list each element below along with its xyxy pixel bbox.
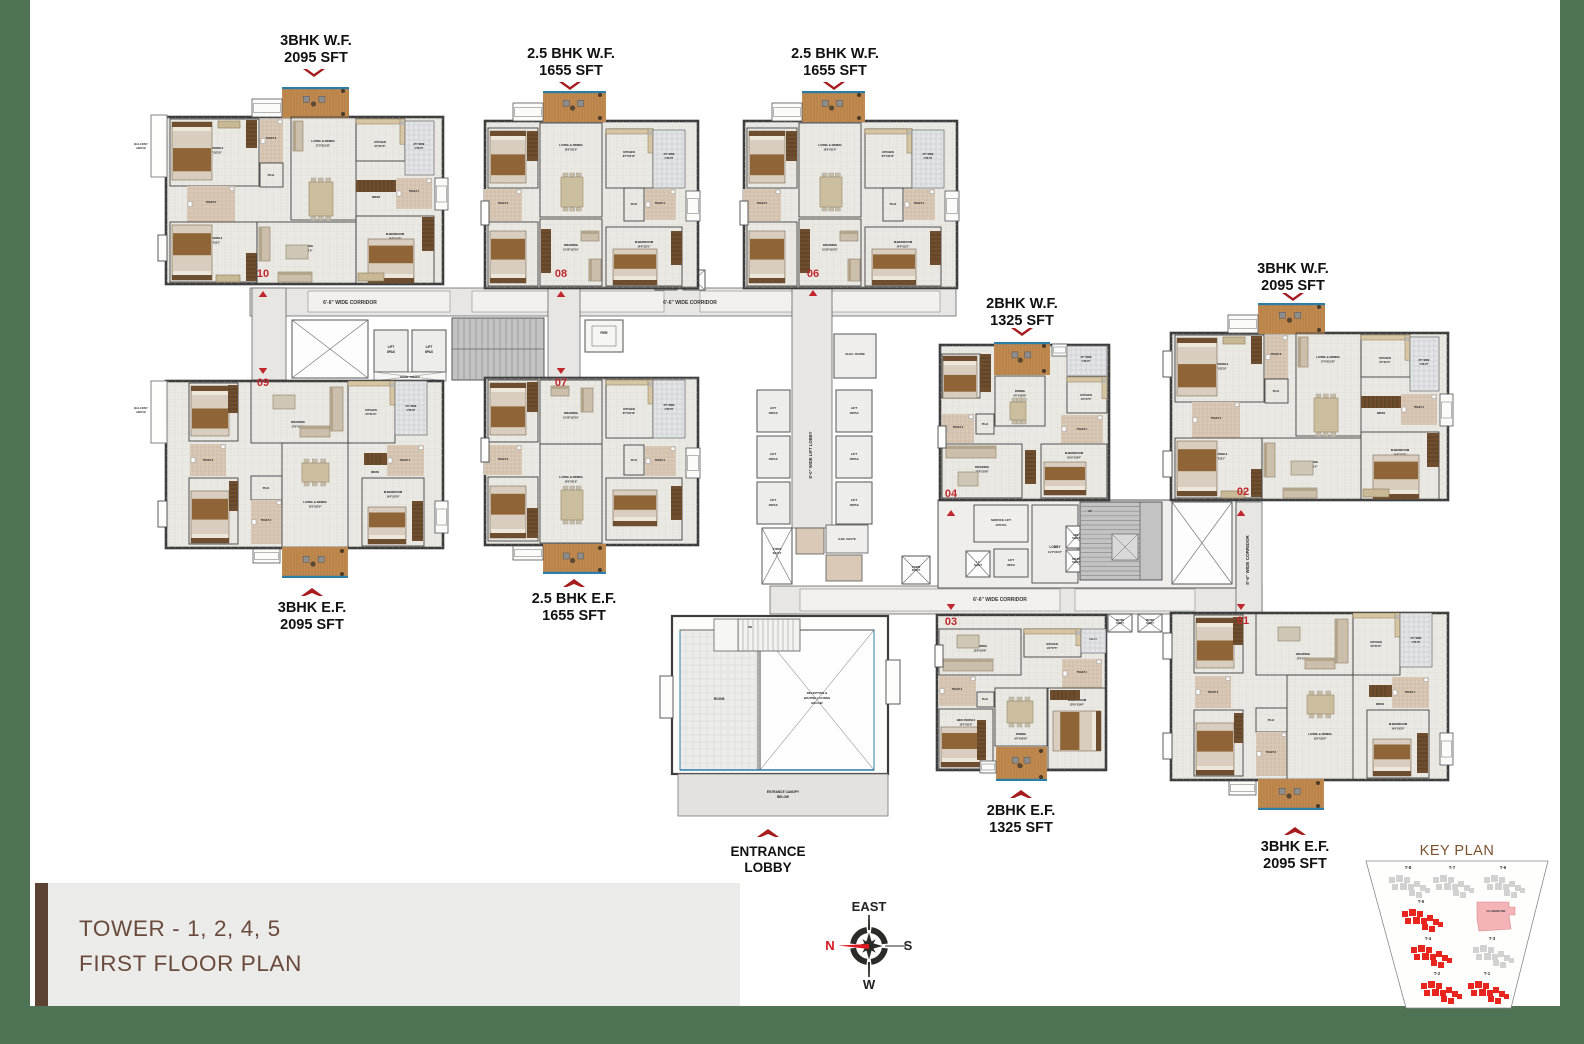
svg-text:DRAWING: DRAWING <box>975 465 990 469</box>
svg-text:LIFT: LIFT <box>388 345 395 349</box>
svg-text:16'0"X11'6": 16'0"X11'6" <box>565 149 578 152</box>
svg-text:FIRE: FIRE <box>1073 535 1079 537</box>
svg-text:16PAX: 16PAX <box>849 503 858 507</box>
svg-text:LIFT: LIFT <box>770 406 776 410</box>
svg-text:16'0"X11'6": 16'0"X11'6" <box>565 481 578 484</box>
svg-text:8'0"X10'10": 8'0"X10'10" <box>623 156 635 158</box>
svg-text:SHAFT: SHAFT <box>1116 622 1124 625</box>
svg-text:PUJA: PUJA <box>890 203 897 206</box>
svg-text:LIFT: LIFT <box>770 452 776 456</box>
svg-text:LIVING & DINING: LIVING & DINING <box>303 500 327 504</box>
svg-text:16PAX: 16PAX <box>768 457 777 461</box>
svg-text:KITCHEN: KITCHEN <box>1046 642 1058 646</box>
svg-text:04: 04 <box>945 488 958 500</box>
svg-text:16PAX: 16PAX <box>768 503 777 507</box>
svg-text:KITCHEN: KITCHEN <box>1379 356 1391 360</box>
svg-text:M.BEDROOM: M.BEDROOM <box>1065 451 1084 455</box>
svg-text:LIFT: LIFT <box>426 345 433 349</box>
svg-text:8'0"X10'10": 8'0"X10'10" <box>623 413 635 415</box>
svg-text:TOILET-2: TOILET-2 <box>261 519 272 522</box>
svg-text:11'0"X7'6": 11'0"X7'6" <box>1080 399 1091 401</box>
svg-text:10'10"X14'0": 10'10"X14'0" <box>1070 704 1084 707</box>
svg-text:TOILET-2: TOILET-2 <box>952 688 963 691</box>
svg-text:3BHK E.F.: 3BHK E.F. <box>1261 839 1330 855</box>
svg-text:2095 SFT: 2095 SFT <box>280 617 344 633</box>
svg-text:LOBBY: LOBBY <box>744 860 791 875</box>
svg-text:BELOW: BELOW <box>811 701 822 705</box>
svg-text:8PAX: 8PAX <box>1007 563 1015 567</box>
svg-text:TOILET-2: TOILET-2 <box>757 202 768 205</box>
svg-text:8'0" WIDE: 8'0" WIDE <box>414 144 425 146</box>
svg-text:PUJA: PUJA <box>982 698 988 701</box>
svg-text:T-2: T-2 <box>1434 971 1441 976</box>
svg-text:9'0"X10'00": 9'0"X10'00" <box>1014 395 1027 398</box>
svg-text:2095 SFT: 2095 SFT <box>284 50 348 66</box>
svg-text:M.BEDROOM: M.BEDROOM <box>1391 448 1410 452</box>
svg-text:2.5 BHK W.F.: 2.5 BHK W.F. <box>791 46 879 62</box>
svg-text:WATER: WATER <box>1116 619 1124 622</box>
svg-text:UTILITY: UTILITY <box>665 158 674 160</box>
svg-text:UTILITY: UTILITY <box>415 148 424 150</box>
svg-text:8PAX: 8PAX <box>425 350 434 354</box>
svg-text:PUJA: PUJA <box>1268 719 1275 722</box>
svg-text:SHAFT: SHAFT <box>974 564 983 567</box>
svg-text:TOILET-2: TOILET-2 <box>498 458 509 461</box>
svg-text:ROOM: ROOM <box>714 697 725 701</box>
svg-text:10'10"X12'10": 10'10"X12'10" <box>822 249 838 252</box>
svg-text:GAR. CHUTE: GAR. CHUTE <box>838 537 856 541</box>
svg-text:KITCHEN: KITCHEN <box>1080 393 1092 397</box>
svg-text:TOILET-3: TOILET-3 <box>203 459 214 462</box>
svg-text:01: 01 <box>1237 615 1249 627</box>
svg-text:10'10"X12'10": 10'10"X12'10" <box>563 249 579 252</box>
svg-text:17'9"X12'10": 17'9"X12'10" <box>1321 361 1335 364</box>
svg-text:11'6"X13'0": 11'6"X13'0" <box>1314 738 1327 741</box>
svg-text:2BHK E.F.: 2BHK E.F. <box>987 803 1056 819</box>
svg-text:TOILET-3: TOILET-3 <box>1208 691 1219 694</box>
svg-text:16PAX: 16PAX <box>849 411 858 415</box>
svg-text:8'0"X11'6": 8'0"X11'6" <box>1379 362 1390 364</box>
svg-text:SHAFT: SHAFT <box>773 551 782 555</box>
svg-text:DINING: DINING <box>1016 732 1027 736</box>
svg-text:16PAX: 16PAX <box>768 411 777 415</box>
svg-text:8'0"X10'10": 8'0"X10'10" <box>882 156 894 158</box>
svg-text:FIRE: FIRE <box>600 331 607 335</box>
svg-text:1655 SFT: 1655 SFT <box>539 63 603 79</box>
svg-text:14'0"X12'1": 14'0"X12'1" <box>897 246 910 249</box>
svg-text:M.BEDROOM: M.BEDROOM <box>386 232 405 236</box>
svg-text:09: 09 <box>257 377 269 389</box>
svg-text:8'0" WIDE: 8'0" WIDE <box>1419 360 1430 362</box>
svg-text:S: S <box>904 938 913 953</box>
svg-text:KITCHEN: KITCHEN <box>882 150 894 154</box>
svg-text:M.BEDROOM: M.BEDROOM <box>384 490 403 494</box>
svg-text:14'4"X10'2": 14'4"X10'2" <box>1048 550 1063 554</box>
svg-text:TOILET-2: TOILET-2 <box>953 426 964 429</box>
svg-text:PUJA: PUJA <box>1273 390 1280 393</box>
svg-text:DRAWING: DRAWING <box>564 411 579 415</box>
svg-text:10'10"X12'10": 10'10"X12'10" <box>563 417 579 420</box>
svg-text:9'6"X11'6": 9'6"X11'6" <box>365 414 376 416</box>
svg-text:T-5: T-5 <box>1418 899 1425 904</box>
svg-text:10'10"X14'0": 10'10"X14'0" <box>1067 457 1081 460</box>
svg-text:LIVING & DINING: LIVING & DINING <box>559 143 583 147</box>
svg-text:STRDS: STRDS <box>773 547 782 551</box>
svg-text:LIVING & DINING: LIVING & DINING <box>818 143 842 147</box>
svg-text:8PAX: 8PAX <box>387 350 396 354</box>
svg-text:LIVING & DINING: LIVING & DINING <box>559 475 583 479</box>
svg-text:TOILET-2: TOILET-2 <box>206 201 217 204</box>
svg-text:11'0"X7'6": 11'0"X7'6" <box>1046 648 1057 650</box>
svg-text:8'0" WIDE: 8'0" WIDE <box>664 154 675 156</box>
svg-text:DINING: DINING <box>1015 389 1026 393</box>
svg-text:1270 KG: 1270 KG <box>995 523 1006 527</box>
svg-text:LIFT: LIFT <box>851 406 857 410</box>
svg-text:3BHK W.F.: 3BHK W.F. <box>1257 261 1329 277</box>
svg-text:1655 SFT: 1655 SFT <box>803 63 867 79</box>
svg-text:TOILET-2: TOILET-2 <box>498 202 509 205</box>
svg-text:8'0"X11'6": 8'0"X11'6" <box>374 146 385 148</box>
svg-text:N: N <box>825 938 834 953</box>
svg-text:9'6"X11'6": 9'6"X11'6" <box>1370 646 1381 648</box>
svg-text:SHAFT: SHAFT <box>1072 537 1080 540</box>
svg-text:DRAWING: DRAWING <box>823 243 838 247</box>
svg-text:M.BEDROOM: M.BEDROOM <box>635 240 654 244</box>
svg-text:LIVING & DINING: LIVING & DINING <box>311 139 335 143</box>
svg-text:8'0" WIDE: 8'0" WIDE <box>664 405 675 407</box>
svg-text:TOILET-1: TOILET-1 <box>655 202 666 205</box>
svg-text:2095 SFT: 2095 SFT <box>1263 856 1327 872</box>
svg-text:DRAWING: DRAWING <box>564 243 579 247</box>
svg-text:PUJA: PUJA <box>982 423 989 426</box>
svg-text:DRAWING: DRAWING <box>1296 652 1311 656</box>
svg-text:PUJA: PUJA <box>631 459 638 462</box>
svg-text:TOWER - 1, 2, 4, 5: TOWER - 1, 2, 4, 5 <box>79 916 281 941</box>
svg-text:DN: DN <box>748 625 752 629</box>
svg-text:T-1: T-1 <box>1484 971 1491 976</box>
svg-text:PRESS: PRESS <box>1072 559 1080 561</box>
svg-text:8'0" WIDE: 8'0" WIDE <box>1411 638 1422 640</box>
svg-text:1325 SFT: 1325 SFT <box>990 313 1054 329</box>
svg-text:2.5 BHK E.F.: 2.5 BHK E.F. <box>532 591 617 607</box>
svg-text:TOILET-1: TOILET-1 <box>914 202 925 205</box>
svg-text:8'-6" WIDE CORRIDOR: 8'-6" WIDE CORRIDOR <box>1245 535 1250 585</box>
svg-text:14'0"X12'0": 14'0"X12'0" <box>1392 728 1405 731</box>
svg-text:ENTRANCE CANOPY: ENTRANCE CANOPY <box>767 790 800 794</box>
svg-text:DRAWING: DRAWING <box>291 420 306 424</box>
svg-text:06: 06 <box>807 268 819 280</box>
svg-text:12'8"X10'8": 12'8"X10'8" <box>974 650 987 653</box>
svg-text:UTILITY: UTILITY <box>407 410 416 412</box>
svg-text:8'0" WIDE: 8'0" WIDE <box>1081 357 1092 359</box>
svg-text:TOILET-1: TOILET-1 <box>1405 691 1416 694</box>
svg-text:UTILITY: UTILITY <box>665 409 674 411</box>
svg-text:07: 07 <box>555 377 567 389</box>
svg-text:T-8: T-8 <box>1405 865 1412 870</box>
svg-text:WATER: WATER <box>1146 619 1154 622</box>
svg-text:2095 SFT: 2095 SFT <box>1261 278 1325 294</box>
svg-text:11'6"X13'0": 11'6"X13'0" <box>309 506 322 509</box>
svg-text:3BHK W.F.: 3BHK W.F. <box>280 33 352 49</box>
svg-text:LIVING & DINING: LIVING & DINING <box>1308 732 1332 736</box>
svg-text:T-6: T-6 <box>1500 865 1507 870</box>
svg-text:BED ROOM-2: BED ROOM-2 <box>957 718 976 722</box>
svg-text:LIFT: LIFT <box>851 498 857 502</box>
svg-text:ENTRANCE: ENTRANCE <box>730 844 805 859</box>
svg-text:SHAFT: SHAFT <box>912 569 921 572</box>
svg-text:LIFT: LIFT <box>770 498 776 502</box>
svg-text:W: W <box>863 977 876 992</box>
svg-text:T-7: T-7 <box>1449 865 1456 870</box>
svg-text:16PAX: 16PAX <box>849 457 858 461</box>
svg-text:ABOVE: ABOVE <box>136 146 146 150</box>
svg-text:SHAFT: SHAFT <box>1072 561 1080 564</box>
svg-text:BELOW: BELOW <box>777 795 789 799</box>
svg-text:SHAFT: SHAFT <box>1146 622 1154 625</box>
svg-text:17'9"X12'10": 17'9"X12'10" <box>316 145 330 148</box>
svg-text:KITCHEN: KITCHEN <box>1370 640 1382 644</box>
svg-text:1655 SFT: 1655 SFT <box>542 608 606 624</box>
svg-text:3BHK E.F.: 3BHK E.F. <box>278 600 347 616</box>
svg-text:2BHK W.F.: 2BHK W.F. <box>986 296 1058 312</box>
svg-text:UTILITY: UTILITY <box>1082 361 1091 363</box>
svg-text:LIFT: LIFT <box>1008 558 1014 562</box>
svg-text:10'2"X11'8": 10'2"X11'8" <box>960 724 973 727</box>
svg-text:08: 08 <box>555 268 567 280</box>
svg-text:1325 SFT: 1325 SFT <box>989 820 1053 836</box>
svg-text:KITCHEN: KITCHEN <box>374 140 386 144</box>
svg-text:UP: UP <box>1088 509 1092 513</box>
svg-text:M.BEDROOM: M.BEDROOM <box>894 240 913 244</box>
svg-text:TOILET-1: TOILET-1 <box>1077 428 1088 431</box>
svg-text:UTILITY: UTILITY <box>1420 364 1429 366</box>
svg-text:SERVICE LIFT: SERVICE LIFT <box>991 518 1011 522</box>
svg-text:EAST: EAST <box>852 899 887 914</box>
svg-text:M.BEDROOM: M.BEDROOM <box>1389 722 1408 726</box>
svg-text:TOILET-3: TOILET-3 <box>266 137 277 140</box>
svg-text:10: 10 <box>257 268 269 280</box>
svg-text:ELEC. ROOM: ELEC. ROOM <box>845 352 865 356</box>
svg-text:14'0"X12'0": 14'0"X12'0" <box>387 496 400 499</box>
svg-text:14'0"X12'1": 14'0"X12'1" <box>638 246 651 249</box>
svg-text:DRESS: DRESS <box>372 196 381 199</box>
svg-text:WAITING LOUNGE: WAITING LOUNGE <box>804 696 831 700</box>
svg-text:LIFT: LIFT <box>851 452 857 456</box>
svg-text:8'0" WIDE: 8'0" WIDE <box>406 406 417 408</box>
svg-text:KITCHEN: KITCHEN <box>623 407 635 411</box>
svg-text:TOILET-1: TOILET-1 <box>1414 406 1425 409</box>
svg-text:UTILITY: UTILITY <box>1412 642 1421 644</box>
svg-text:TOILET-2: TOILET-2 <box>1266 751 1277 754</box>
svg-text:KEY PLAN: KEY PLAN <box>1420 843 1495 859</box>
svg-text:KITCHEN: KITCHEN <box>365 408 377 412</box>
svg-text:TOILET-2: TOILET-2 <box>1211 417 1222 420</box>
svg-text:TOILET-3: TOILET-3 <box>1271 353 1282 356</box>
svg-text:UTILITY: UTILITY <box>1089 639 1098 641</box>
svg-text:T-4: T-4 <box>1425 936 1432 941</box>
svg-text:T-3: T-3 <box>1489 936 1496 941</box>
svg-text:PUJA: PUJA <box>631 203 638 206</box>
svg-text:2.5 BHK W.F.: 2.5 BHK W.F. <box>527 46 615 62</box>
svg-text:RECEPTION &: RECEPTION & <box>807 691 828 695</box>
svg-text:6'-6" WIDE CORRIDOR: 6'-6" WIDE CORRIDOR <box>323 300 377 306</box>
svg-text:LOBBY: LOBBY <box>1049 545 1061 549</box>
svg-text:03: 03 <box>945 616 957 628</box>
svg-text:DRESS: DRESS <box>1376 703 1385 706</box>
svg-text:8'-0" WIDE LIFT LOBBY: 8'-0" WIDE LIFT LOBBY <box>808 431 813 478</box>
svg-text:02: 02 <box>1237 486 1249 498</box>
svg-text:TOILET-1: TOILET-1 <box>655 459 666 462</box>
svg-text:6'-6" WIDE CORRIDOR: 6'-6" WIDE CORRIDOR <box>663 300 717 306</box>
svg-text:TOILET-1: TOILET-1 <box>409 190 420 193</box>
svg-text:DRESS: DRESS <box>1377 412 1386 415</box>
svg-text:9'0"X10'00": 9'0"X10'00" <box>1015 738 1028 741</box>
svg-text:UTILITY: UTILITY <box>924 158 933 160</box>
svg-text:16'0"X11'6": 16'0"X11'6" <box>824 149 837 152</box>
svg-text:LIVING & DINING: LIVING & DINING <box>1316 355 1340 359</box>
svg-text:6'-6" WIDE CORRIDOR: 6'-6" WIDE CORRIDOR <box>973 597 1027 603</box>
svg-text:KITCHEN: KITCHEN <box>623 150 635 154</box>
svg-text:ABOVE: ABOVE <box>136 410 146 414</box>
svg-text:DRESS: DRESS <box>371 471 380 474</box>
svg-text:FIRST FLOOR PLAN: FIRST FLOOR PLAN <box>79 951 302 976</box>
svg-text:8'0" WIDE: 8'0" WIDE <box>923 154 934 156</box>
svg-text:PUJA: PUJA <box>268 174 275 177</box>
svg-text:TOILET-1: TOILET-1 <box>400 459 411 462</box>
svg-text:PASS. SHAFT: PASS. SHAFT <box>400 375 420 379</box>
svg-text:TOILET-1: TOILET-1 <box>1077 671 1088 674</box>
svg-text:PUJA: PUJA <box>263 487 270 490</box>
svg-text:CLUBHOUSE: CLUBHOUSE <box>1486 909 1505 913</box>
